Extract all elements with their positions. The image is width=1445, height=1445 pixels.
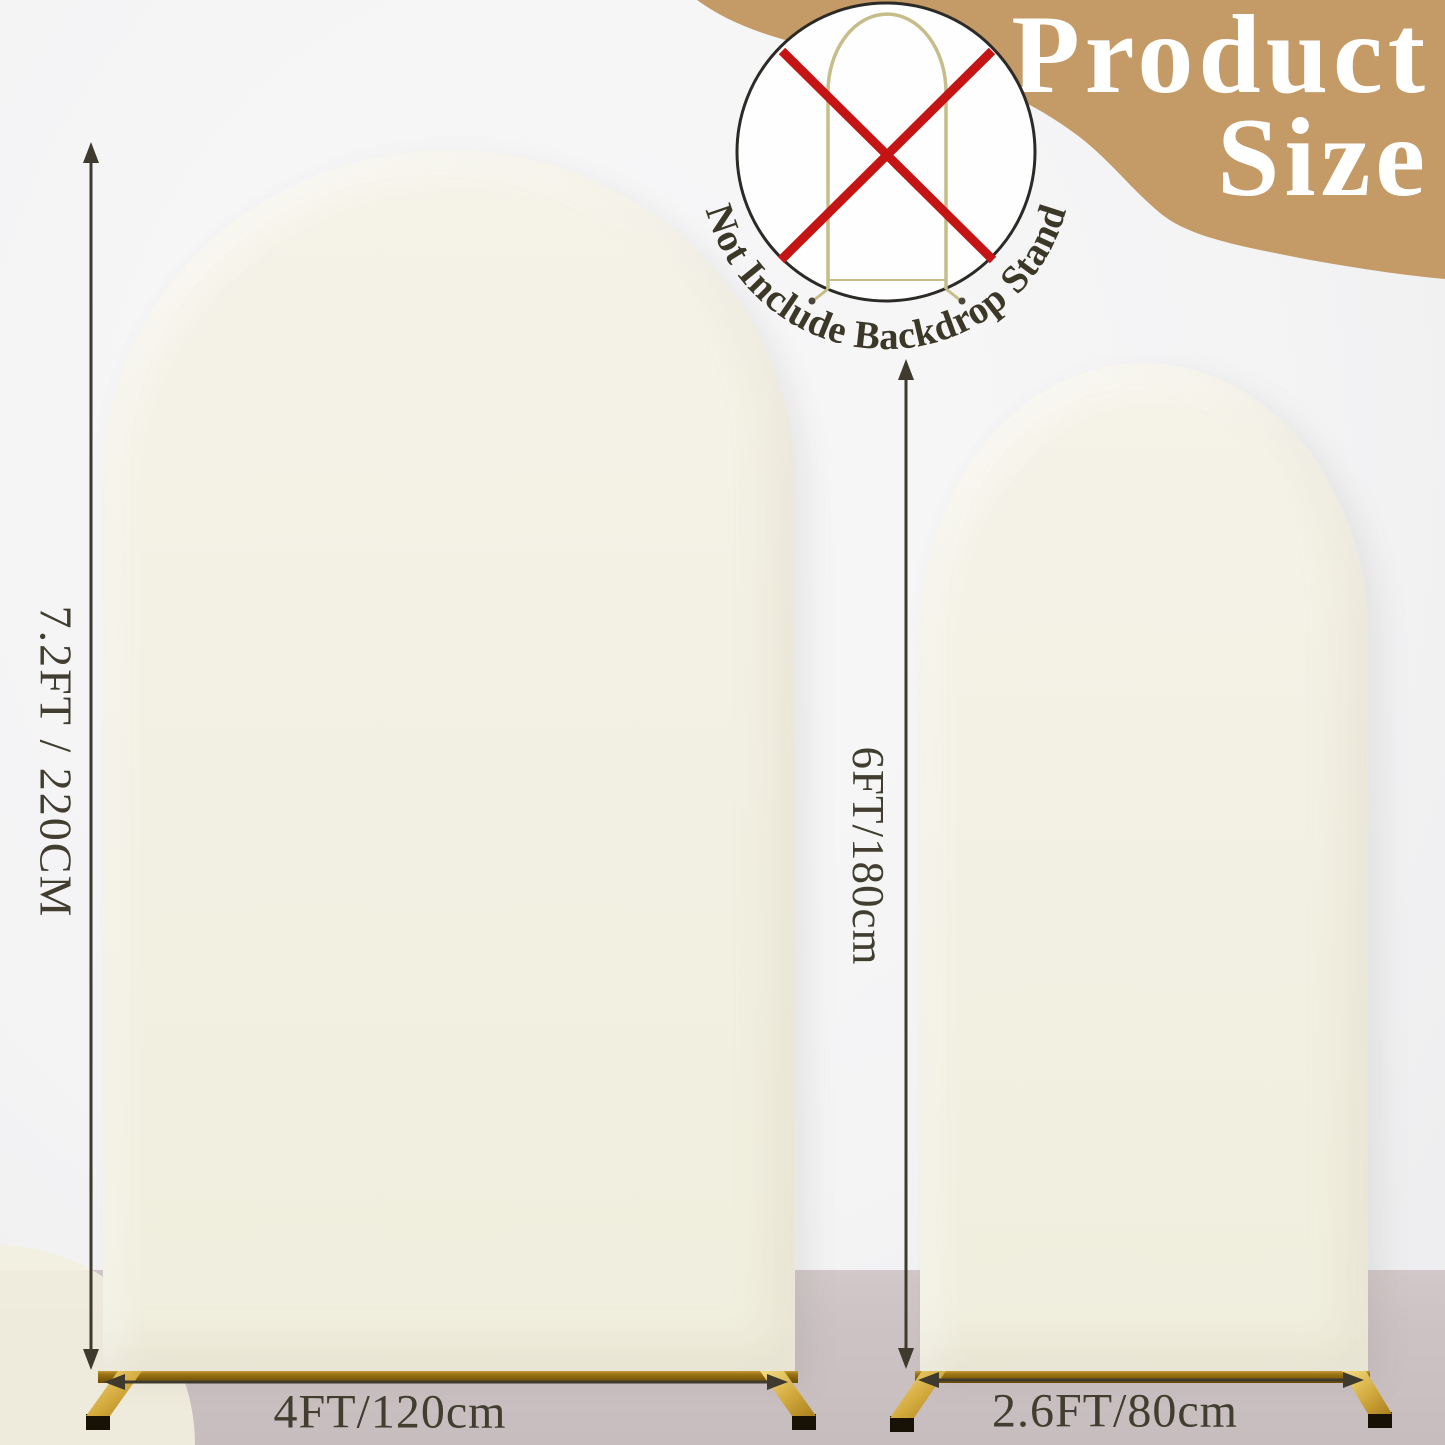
height-arrow-large-icon — [83, 142, 99, 1370]
product-size-diagram: Product Size — [0, 0, 1445, 1445]
small-arch-height-label: 6FT/180cm — [842, 747, 894, 966]
dimension-arrows — [83, 142, 1364, 1390]
height-arrow-small-icon — [898, 359, 914, 1369]
large-arch-width-label: 4FT/120cm — [274, 1385, 507, 1440]
foot-cap — [792, 1414, 816, 1430]
small-arch-width-label: 2.6FT/80cm — [992, 1384, 1238, 1439]
foot-cap — [890, 1416, 914, 1432]
not-included-badge: Not Include Backdrop Stand — [697, 3, 1075, 358]
diagram-overlay: Not Include Backdrop Stand — [0, 0, 1445, 1445]
foot-cap — [86, 1414, 110, 1430]
foot-cap — [1368, 1412, 1392, 1428]
large-arch-height-label: 7.2FT / 220CM — [30, 606, 83, 919]
foot-left — [86, 1371, 142, 1416]
